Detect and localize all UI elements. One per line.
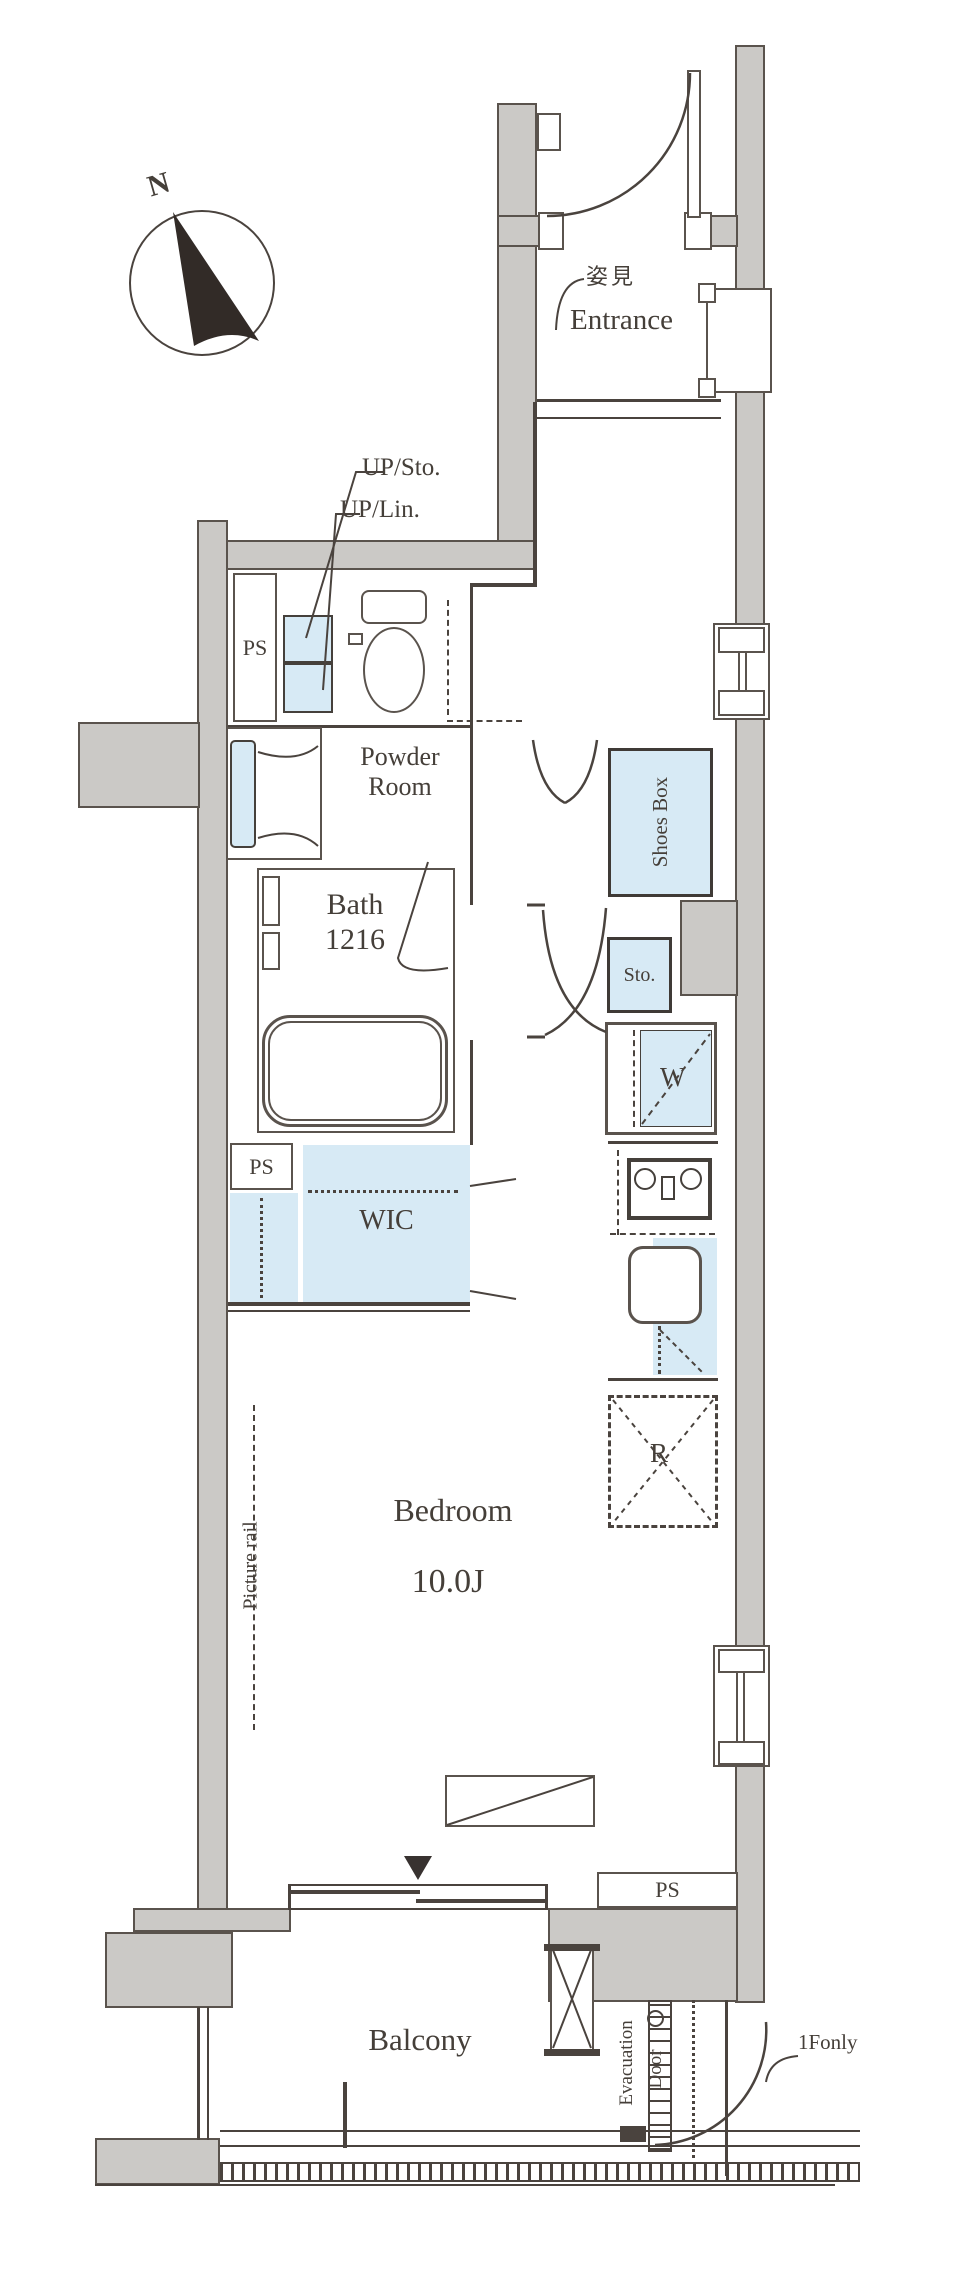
- hall-window-sash-top: [718, 627, 765, 653]
- wall-left-outer: [197, 520, 228, 1912]
- entrance-label: Entrance: [570, 304, 673, 337]
- bedroom-label: Bedroom: [393, 1492, 512, 1529]
- hall-corner-line: [470, 583, 537, 587]
- south-window-sash-left: [290, 1890, 420, 1894]
- hall-door-arc-1: [543, 910, 606, 1032]
- balcony-railing: [220, 2162, 860, 2182]
- hall-window-sash-bottom: [718, 690, 765, 716]
- south-window-cap-left: [288, 1884, 291, 1910]
- powder-bifold-door: [533, 740, 597, 803]
- kitchen-top-line: [608, 1141, 718, 1144]
- balcony-left-line-1: [197, 2007, 200, 2140]
- entrance-step-line-2: [537, 417, 721, 419]
- washer-label: W: [660, 1062, 685, 1093]
- bedroom-side-window-sash-top: [718, 1649, 765, 1673]
- hall-left-wall-line: [533, 402, 537, 585]
- toilet-bowl: [363, 627, 425, 713]
- entrance-door-frame-left: [538, 212, 564, 250]
- balcony-inner-line-1: [220, 2130, 860, 2132]
- wall-top-band: [197, 540, 537, 570]
- sink-edge-dots: [658, 1326, 661, 1374]
- south-window-frame-top: [288, 1884, 548, 1886]
- window-meeting-marker: [404, 1856, 432, 1880]
- entrance-door-leaf: [687, 70, 701, 218]
- powder-room-line2: Room: [368, 772, 432, 802]
- balcony-label-wrap: Balcony: [270, 2022, 570, 2058]
- kitchen-sink: [628, 1246, 702, 1324]
- balcony-label: Balcony: [368, 2022, 471, 2058]
- bedroom-size-wrap: 10.0J: [298, 1562, 598, 1601]
- powder-room-label: Powder Room: [340, 742, 460, 802]
- storage-box: Sto.: [607, 937, 672, 1013]
- balcony-inner-line-2: [220, 2145, 860, 2147]
- meter-box-hinge-bottom: [698, 378, 716, 398]
- wall-entrance-left: [497, 103, 537, 570]
- wall-left-protrusion: [78, 722, 200, 808]
- wall-entrance-header-left: [497, 215, 541, 247]
- washer-dash: [633, 1030, 635, 1127]
- meter-box-hinge-top: [698, 283, 716, 303]
- wic-leader-bottom: [470, 1291, 516, 1299]
- counter-divider-dash: [610, 1233, 715, 1235]
- floor-plan: N 姿見 Entrance PS UP/Sto. UP/Lin. Powder …: [0, 0, 960, 2276]
- entrance-wall-tab: [537, 113, 561, 151]
- wic-label: WIC: [359, 1205, 413, 1237]
- toilet-compartment-dash-v: [447, 600, 449, 715]
- balcony-outer-line: [95, 2184, 835, 2186]
- entrance-step-line-1: [537, 399, 721, 402]
- entrance-door-arc: [547, 73, 690, 216]
- wic-hanger-dots-h: [308, 1190, 458, 1193]
- bathtub-inner: [268, 1021, 442, 1121]
- south-window-frame-bottom: [288, 1908, 548, 1910]
- up-storage-label: UP/Sto.: [362, 454, 441, 483]
- wic-bottom-wall-thin: [228, 1310, 470, 1312]
- pipe-space-top: PS: [233, 573, 277, 722]
- wic-bottom-wall: [228, 1302, 470, 1306]
- refrigerator-label: R: [650, 1438, 668, 1469]
- bedroom-counter: [445, 1775, 595, 1827]
- kitchen-bottom-line: [608, 1378, 718, 1381]
- toilet-tank: [361, 590, 427, 624]
- powder-room-line1: Powder: [360, 742, 439, 772]
- bath-counter-top: [262, 876, 280, 926]
- hall-door-arc-2: [545, 908, 606, 1035]
- bath-counter-bottom: [262, 932, 280, 970]
- compass-north-label: N: [144, 166, 174, 205]
- hall-window-glass: [738, 653, 747, 690]
- toilet-compartment-dash-h: [447, 720, 522, 722]
- stove-burner-right: [680, 1168, 702, 1190]
- balcony-drain: [620, 2126, 646, 2142]
- south-window-sash-right: [416, 1899, 546, 1903]
- balcony-right-wall-line: [725, 2000, 728, 2176]
- wic-leader-top: [470, 1179, 516, 1186]
- south-window-cap-right: [545, 1884, 548, 1910]
- wall-shoes-chunk: [680, 900, 738, 996]
- bedroom-side-window-sash-bottom: [718, 1741, 765, 1765]
- bath-size: 1216: [325, 923, 385, 958]
- pipe-space-mid: PS: [230, 1143, 293, 1190]
- counter-edge-dash: [617, 1150, 619, 1235]
- wic-right-wall-line: [470, 1040, 473, 1145]
- balcony-right-dots: [692, 2000, 695, 2158]
- evacuation-hatch-bar-top: [544, 1944, 600, 1951]
- pipe-space-bottom: PS: [597, 1872, 738, 1908]
- bedroom-size: 10.0J: [412, 1562, 485, 1601]
- stove-grill: [661, 1176, 675, 1200]
- compass: [129, 210, 275, 356]
- powder-right-wall-line: [470, 583, 473, 905]
- entrance-mirror-label: 姿見: [586, 264, 636, 289]
- evacuation-hatch-bar-bottom: [544, 2049, 600, 2056]
- wic-label-wrap: WIC: [303, 1205, 470, 1237]
- pipe-space-bottom-label: PS: [655, 1877, 679, 1902]
- wic-left-strip: [230, 1193, 298, 1302]
- balcony-divider: [343, 2082, 347, 2148]
- bedroom-side-window-glass: [736, 1673, 745, 1741]
- bath-label: Bath: [327, 888, 384, 923]
- vanity-basin: [230, 740, 256, 848]
- up-linen-label: UP/Lin.: [340, 496, 420, 525]
- up-linen-box: [283, 663, 333, 713]
- wall-balcony-left-block: [95, 2138, 220, 2185]
- first-floor-only-label: 1Fonly: [798, 2030, 858, 2054]
- wall-entrance-header-right: [708, 215, 738, 247]
- first-floor-only-leader: [766, 2056, 798, 2082]
- wall-bottom-left-block: [105, 1932, 233, 2008]
- wall-bottom-left-band: [133, 1908, 291, 1932]
- picture-rail-label: Picture rail: [240, 1486, 263, 1646]
- pipe-space-top-label: PS: [243, 635, 267, 660]
- bedroom-label-wrap: Bedroom: [303, 1492, 603, 1529]
- wic-hanger-dots-v: [260, 1198, 263, 1298]
- up-storage-box: [283, 615, 333, 663]
- stove-burner-left: [634, 1168, 656, 1190]
- toilet-flush-handle: [348, 633, 363, 645]
- evacuation-label-line1: Evacuation: [616, 1998, 638, 2128]
- evacuation-hatch: [550, 1947, 594, 2053]
- shoes-box-label: Shoes Box: [648, 757, 672, 887]
- storage-label: Sto.: [624, 964, 656, 987]
- pipe-space-mid-label: PS: [249, 1154, 273, 1179]
- bath-label-block: Bath 1216: [300, 888, 410, 957]
- balcony-left-line-2: [207, 2007, 209, 2140]
